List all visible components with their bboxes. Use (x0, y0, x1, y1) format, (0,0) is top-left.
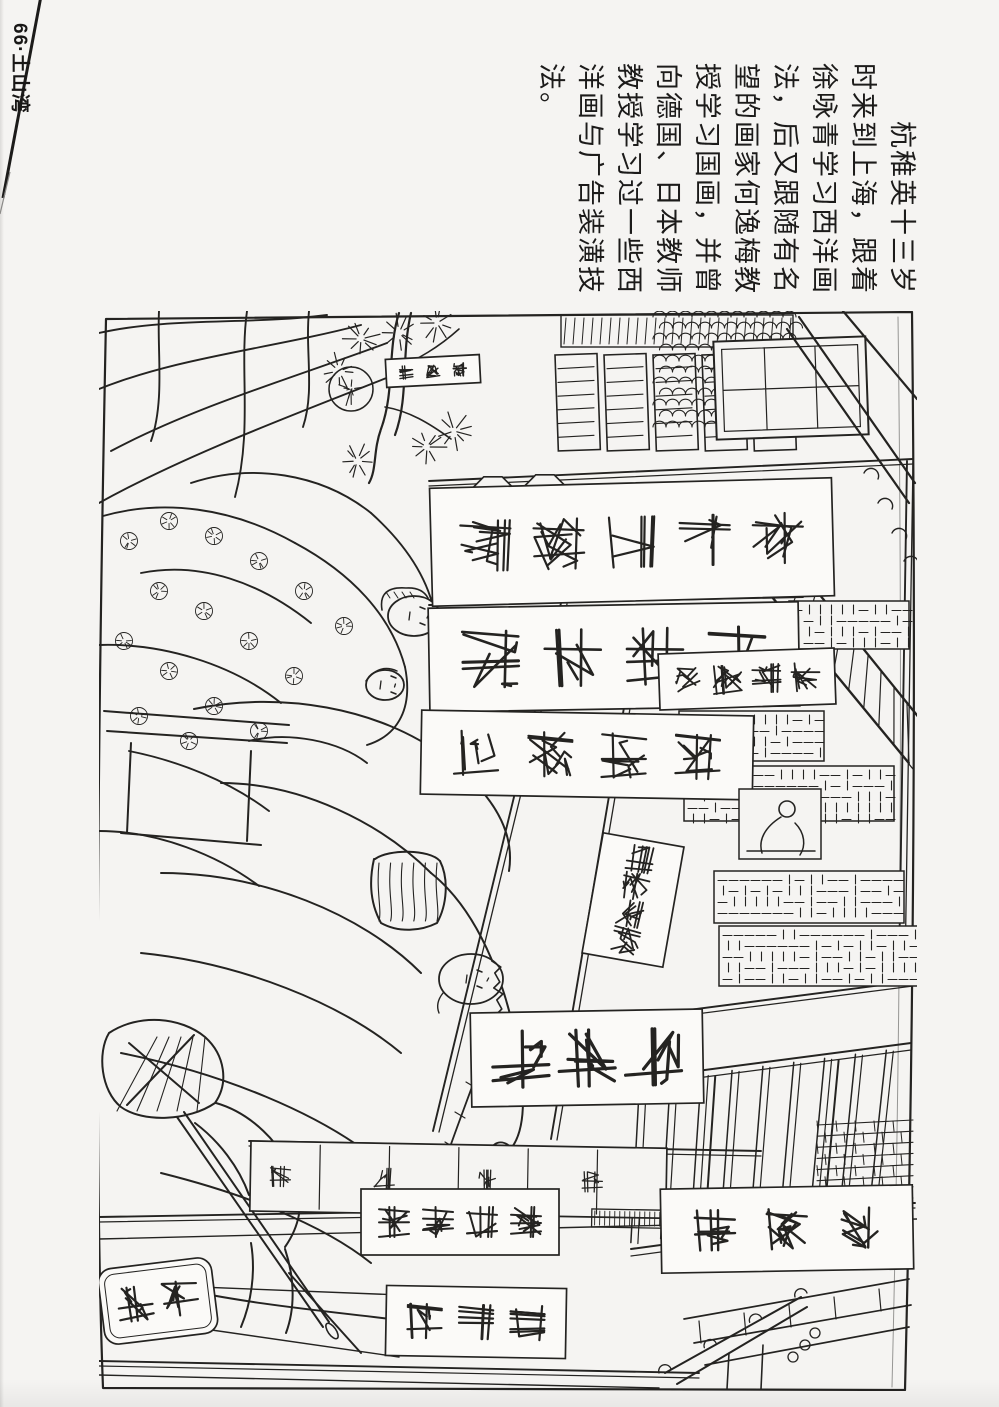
eave-corner (659, 1289, 820, 1389)
book-page: 66·土山湾 杭稚英十三岁时来到上海，跟着徐咏青学习西洋画法，后又跟随有名望的画… (0, 0, 999, 1407)
caption-line: 向德国、日本教师 (648, 63, 687, 301)
caption-line: 洋画与广告装潢技 (570, 63, 609, 301)
caption-line: 教授学习过一些西 (609, 63, 648, 301)
shop-banner (658, 648, 836, 710)
figures-drapery (99, 311, 435, 886)
lattice-panel (719, 926, 917, 986)
shop-banner (660, 1185, 913, 1273)
page-number-and-title: 66·土山湾 (11, 23, 35, 141)
caption-line: 授学习国画，并曾 (687, 63, 726, 301)
shop-banner (385, 355, 480, 388)
lattice-panel (714, 871, 904, 923)
lattice-panel (789, 601, 912, 649)
illustration (99, 311, 917, 1391)
face (366, 669, 404, 700)
caption-line: 望的画家何逸梅教 (726, 63, 765, 301)
shop-banner (385, 1285, 566, 1358)
caption-line: 法。 (531, 63, 570, 301)
caption-text: 杭稚英十三岁时来到上海，跟着徐咏青学习西洋画法，后又跟随有名望的画家何逸梅教授学… (529, 63, 921, 301)
shop-banner (361, 1189, 559, 1255)
caption-line: 徐咏青学习西洋画 (804, 63, 843, 301)
shop-banner (420, 710, 753, 800)
caption-line: 杭稚英十三岁 (882, 63, 921, 301)
stone-steps (684, 1279, 911, 1365)
shop-banner (470, 1009, 704, 1107)
caption-line: 法，后又跟随有名 (765, 63, 804, 301)
shop-banner (582, 833, 684, 967)
gable-window (713, 336, 868, 439)
shop-banner (99, 1256, 219, 1345)
tree (324, 311, 471, 483)
hair-bun (329, 367, 373, 411)
shop-banner (430, 478, 835, 606)
caption-line: 时来到上海，跟着 (843, 63, 882, 301)
window-figure (739, 789, 821, 859)
